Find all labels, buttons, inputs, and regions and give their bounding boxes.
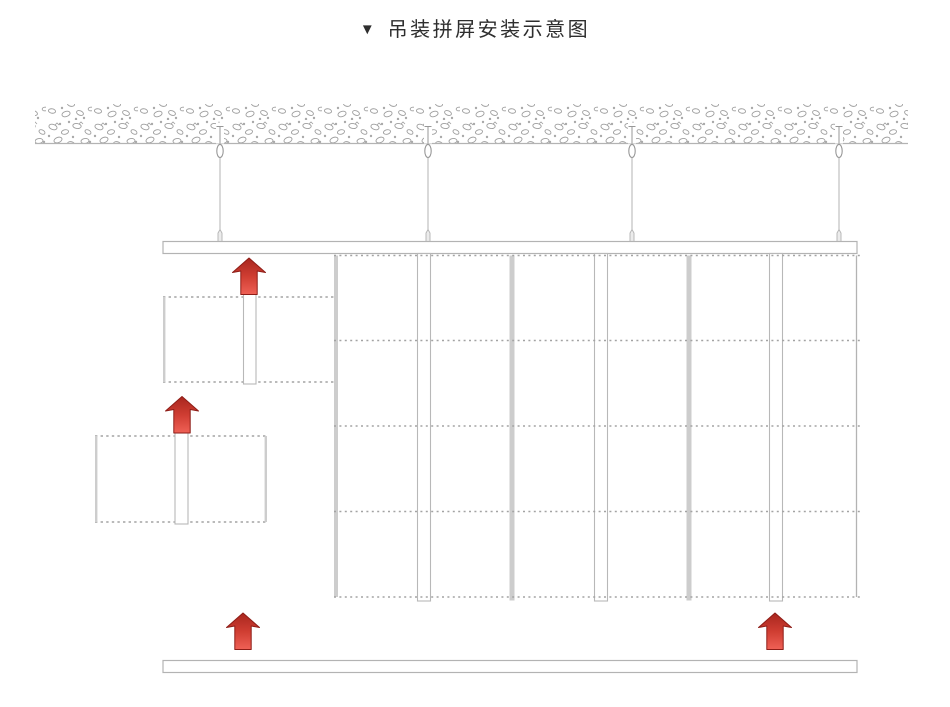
mounting-rail — [244, 294, 257, 384]
rod-ferrule — [426, 230, 430, 243]
panel-edge-bar — [163, 297, 165, 382]
eyebolt-icon — [217, 144, 223, 157]
bottom-bar — [163, 661, 857, 673]
mounting-rail — [418, 254, 431, 602]
lift-direction-arrow-icon — [166, 397, 199, 434]
staging-panel — [95, 433, 267, 524]
mounting-rail — [175, 433, 188, 524]
rod-ferrule — [837, 230, 841, 243]
panel-edge-bar — [95, 436, 97, 522]
grid-support-bar — [510, 256, 515, 601]
rod-ferrule — [630, 230, 634, 243]
diagram-canvas — [0, 0, 950, 707]
lift-direction-arrow-icon — [233, 258, 266, 295]
rod-ferrule — [218, 230, 222, 243]
mounting-rail — [595, 254, 608, 602]
panel-edge-bar — [265, 436, 267, 522]
screen-grid — [334, 254, 863, 602]
hanger-assembly — [835, 123, 843, 243]
ceiling-slab-texture — [35, 104, 908, 143]
hanger-assembly — [628, 123, 636, 243]
suspension-beam — [163, 242, 857, 254]
lift-direction-arrow-icon — [227, 613, 260, 650]
staging-panel — [163, 294, 334, 384]
grid-support-bar — [687, 256, 692, 601]
lift-direction-arrow-icon — [759, 613, 792, 650]
hoisting-installation-diagram: ▼吊装拼屏安装示意图 — [0, 0, 950, 707]
hanger-assembly — [216, 123, 224, 243]
hanger-assembly — [424, 123, 432, 243]
eyebolt-icon — [425, 144, 431, 157]
eyebolt-icon — [836, 144, 842, 157]
mounting-rail — [770, 254, 783, 602]
eyebolt-icon — [629, 144, 635, 157]
